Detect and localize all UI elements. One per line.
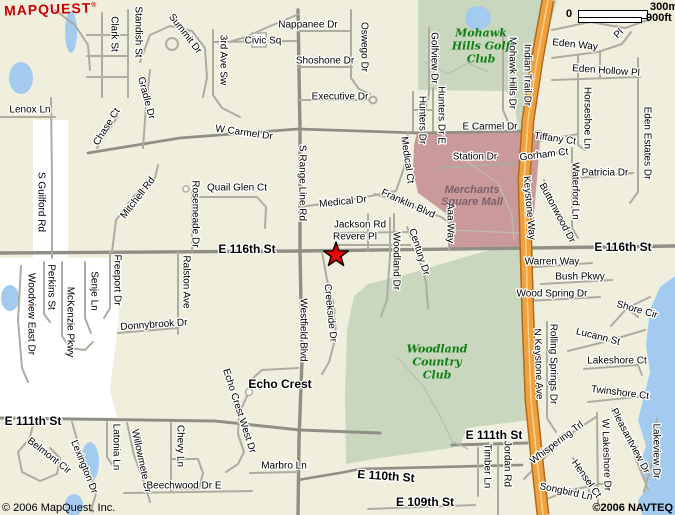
- mapquest-logo: MAPQUEST®: [4, 0, 98, 19]
- street-label: Perkins St: [46, 264, 57, 310]
- street-label: Rolling Springs Dr: [548, 324, 559, 405]
- street-label: Wood Spring Dr: [517, 289, 589, 300]
- road-marbro-ln: [250, 472, 298, 473]
- white-area-southwest: [0, 258, 119, 419]
- scale-bar: 0 300m 900ft: [558, 2, 675, 30]
- street-label: E 109th St: [396, 495, 454, 509]
- street-label: Patricia Dr: [582, 168, 629, 179]
- quail-glen-marker: [183, 186, 189, 192]
- street-label: Lenox Ln: [9, 105, 50, 116]
- street-label: Civic Sq: [245, 36, 282, 47]
- street-label: Rosemeade Dr: [190, 180, 201, 248]
- street-label: E Carmel Dr: [462, 122, 518, 133]
- scale-bar-imperial: [578, 17, 642, 23]
- street-label: Beechwood Dr E: [146, 481, 221, 492]
- street-label: Square Mall: [441, 196, 504, 208]
- street-label: Woodland: [407, 343, 468, 356]
- copyright-navteq: ©2006 NAVTEQ: [592, 502, 673, 514]
- road-s-guilford-rd: [51, 98, 52, 258]
- street-label: Lakeview Dr: [651, 423, 662, 479]
- street-label: Hunters Dr E: [436, 86, 447, 144]
- street-label: Ralston Ave: [181, 255, 192, 309]
- street-label: E 111th St: [5, 414, 62, 428]
- street-label: Timber Ln: [482, 444, 493, 489]
- street-label: Woodview East Dr: [26, 273, 37, 356]
- lake-0: [65, 11, 77, 53]
- street-label: S Range Line Rd: [297, 145, 308, 221]
- street-label: Echo Crest: [248, 377, 311, 391]
- street-label: Westfield Blvd: [298, 298, 309, 361]
- street-label: Jordan Rd: [502, 441, 513, 487]
- street-label: Hills Golf: [451, 40, 513, 53]
- street-label: Hunters Dr: [417, 96, 428, 145]
- street-label: Mohawk: [454, 27, 507, 40]
- mapquest-logo-text: MAPQUEST: [4, 0, 92, 19]
- street-label: Freeport Dr: [112, 254, 123, 306]
- street-label: Aaa Way: [445, 203, 456, 243]
- street-label: Woodland Dr: [391, 232, 402, 291]
- street-label: Eden Estates Dr: [642, 107, 653, 180]
- street-label: Lakeshore Ct: [587, 356, 647, 367]
- street-label: Quail Glen Ct: [207, 183, 267, 194]
- street-label: Nappanee Dr: [278, 20, 338, 31]
- street-label: Club: [467, 53, 496, 66]
- street-label: S Guilford Rd: [36, 172, 47, 232]
- map-canvas[interactable]: Nappanee DrCivic SqClark StStandish StSu…: [0, 0, 675, 515]
- street-label: E 111th St: [466, 428, 523, 442]
- street-label: Club: [423, 369, 452, 382]
- street-label: Bush Pkwy: [555, 272, 604, 283]
- street-label: Merchants: [444, 184, 499, 196]
- street-label: Horseshoe Ln: [582, 87, 593, 149]
- copyright-mapquest: © 2006 MapQuest, Inc.: [2, 502, 115, 514]
- street-label: McKenzie Pkwy: [65, 287, 76, 358]
- street-label: Station Dr: [453, 152, 498, 163]
- street-label: Revere Pl: [333, 232, 377, 243]
- street-label: Marbro Ln: [261, 461, 307, 472]
- street-label: Oswego Dr: [359, 22, 370, 73]
- street-label: Waterford Ln: [570, 162, 581, 219]
- street-label: Latonia Ln: [111, 424, 122, 471]
- street-label: 3rd Ave Sw: [218, 35, 229, 86]
- scale-imperial-label: 900ft: [646, 12, 672, 24]
- street-label: Shoshone Dr: [296, 56, 355, 67]
- street-label: Standish St: [133, 6, 144, 57]
- street-label: Senje Ln: [89, 271, 100, 310]
- lake-1: [9, 62, 33, 94]
- street-label: Country: [412, 356, 463, 369]
- scale-zero-label: 0: [566, 8, 572, 20]
- street-label: E 116th St: [594, 240, 651, 254]
- street-label: Jackson Rd: [334, 220, 386, 231]
- street-label: Executive Dr: [312, 92, 369, 103]
- street-label: E 116th St: [218, 242, 275, 256]
- street-label: Chevy Ln: [175, 425, 186, 467]
- street-label: Warren Way: [525, 257, 580, 268]
- registered-mark-icon: ®: [91, 2, 97, 9]
- street-label: Clark St: [109, 16, 120, 52]
- lake-2: [1, 285, 19, 311]
- street-label: Golfview Dr: [429, 32, 440, 84]
- map-screenshot: Nappanee DrCivic SqClark StStandish StSu…: [0, 0, 675, 515]
- street-label: Indian Trail Dr: [522, 44, 533, 107]
